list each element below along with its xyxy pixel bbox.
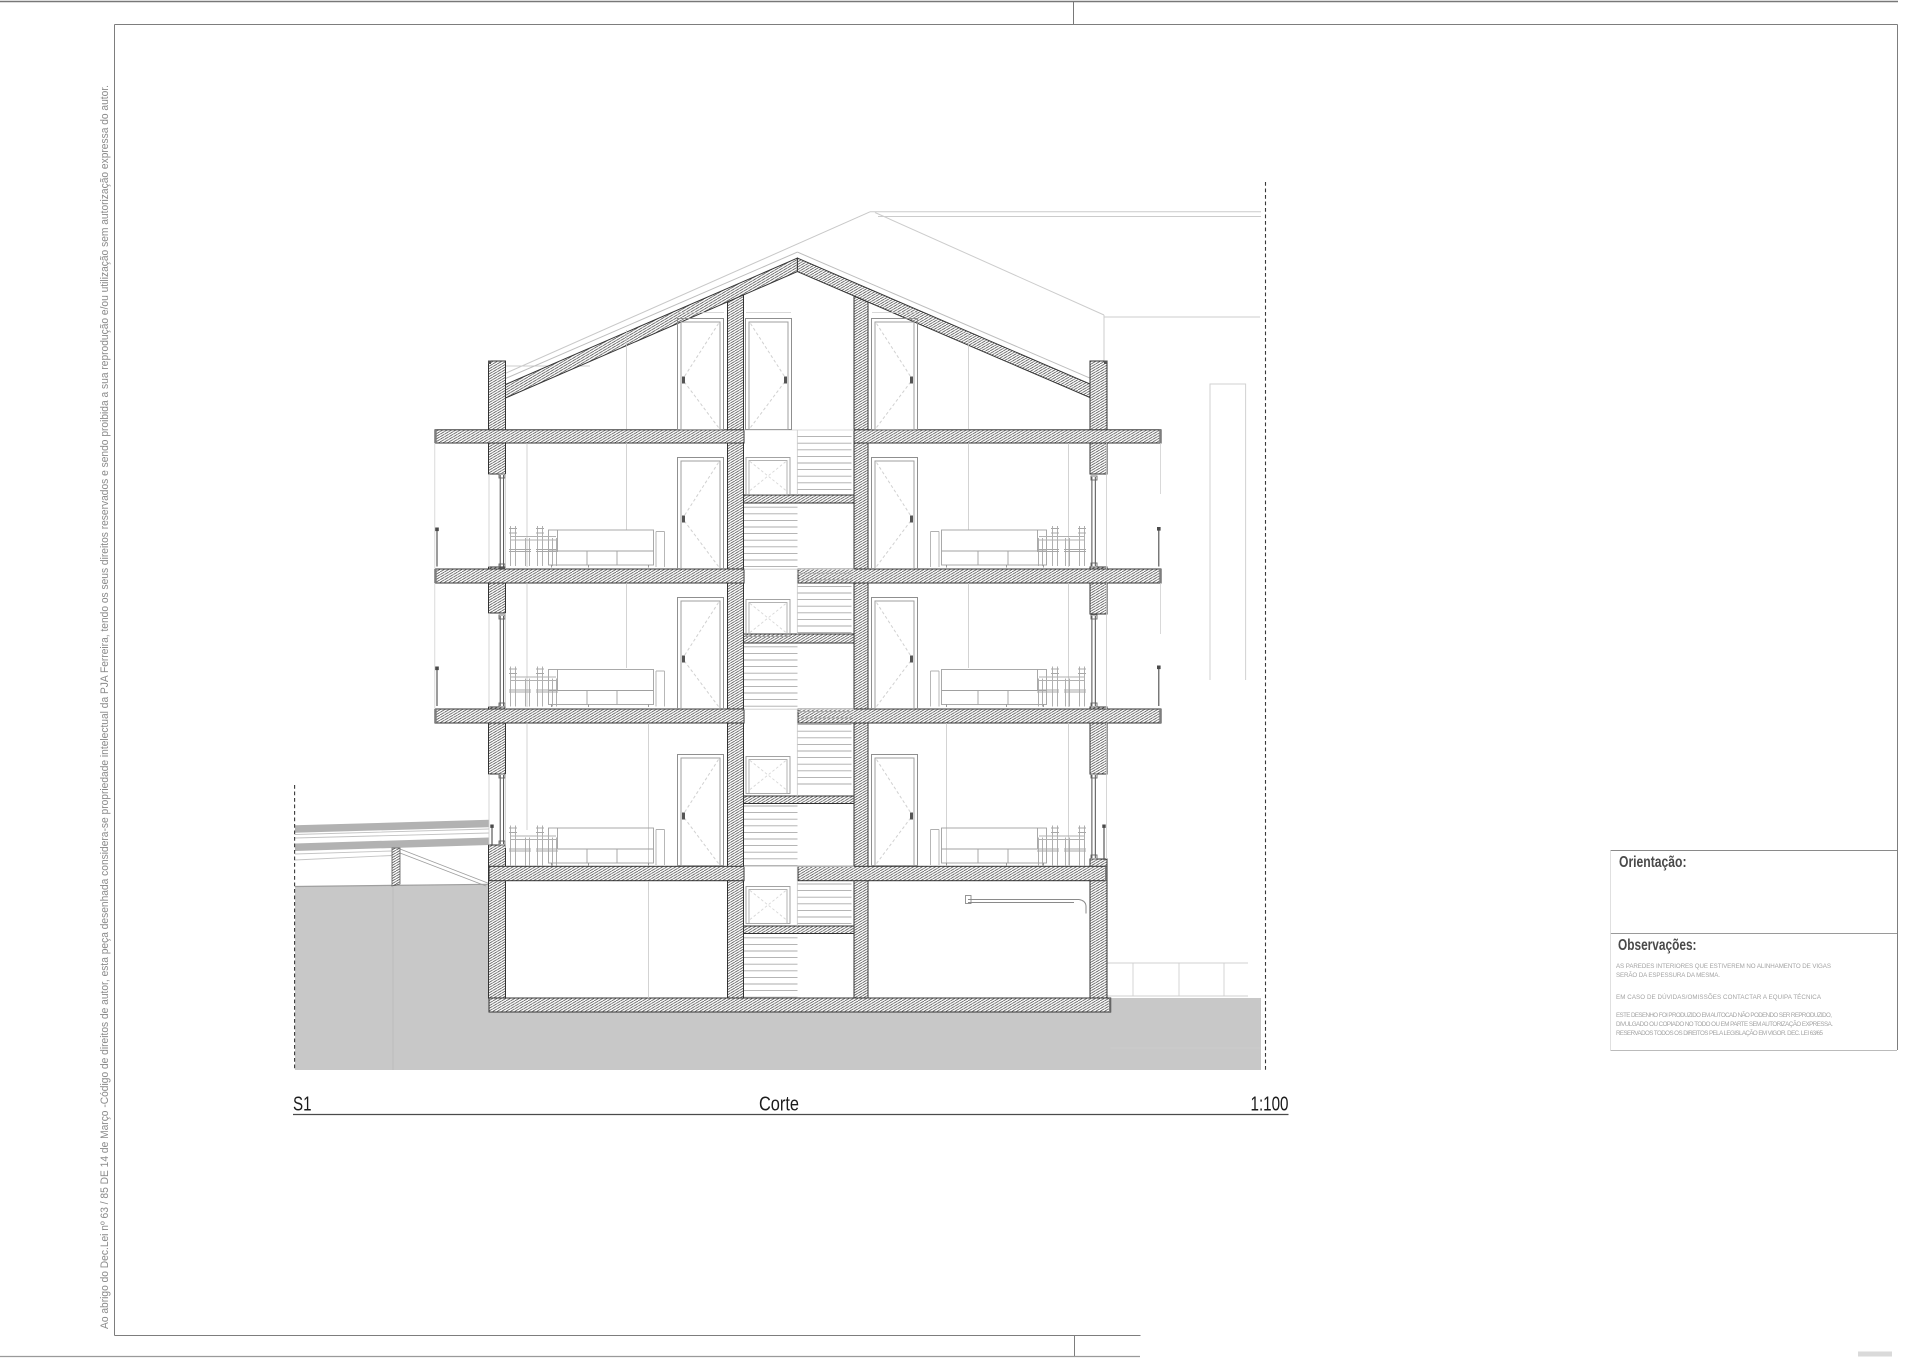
svg-text:EM CASO DE DÚVIDAS/OMISSÕES CO: EM CASO DE DÚVIDAS/OMISSÕES CONTACTAR A … [1616,994,1822,1001]
svg-text:1:100: 1:100 [1251,1093,1289,1116]
svg-text:Corte: Corte [759,1093,799,1116]
svg-text:Observações:: Observações: [1618,937,1697,954]
svg-text:Ao abrigo do Dec.Lei nº 63 / 8: Ao abrigo do Dec.Lei nº 63 / 85 DE 14 de… [99,85,111,1329]
svg-text:DIVULGADO OU COPIADO NO TODO O: DIVULGADO OU COPIADO NO TODO OU EM PARTE… [1616,1021,1833,1028]
svg-text:RESERVADOS TODOS OS DIREITOS P: RESERVADOS TODOS OS DIREITOS PELA LEGISL… [1616,1030,1824,1037]
svg-text:ESTE DESENHO FOI PRODUZIDO EM: ESTE DESENHO FOI PRODUZIDO EM AUTOCAD NÃ… [1616,1012,1832,1019]
svg-text:SERÃO DA ESPESSURA DA MESMA.: SERÃO DA ESPESSURA DA MESMA. [1616,972,1720,979]
svg-text:AS PAREDES INTERIORES QUE ESTI: AS PAREDES INTERIORES QUE ESTIVEREM NO A… [1616,963,1831,970]
svg-text:Orientação:: Orientação: [1619,854,1687,871]
svg-text:S1: S1 [293,1093,312,1116]
